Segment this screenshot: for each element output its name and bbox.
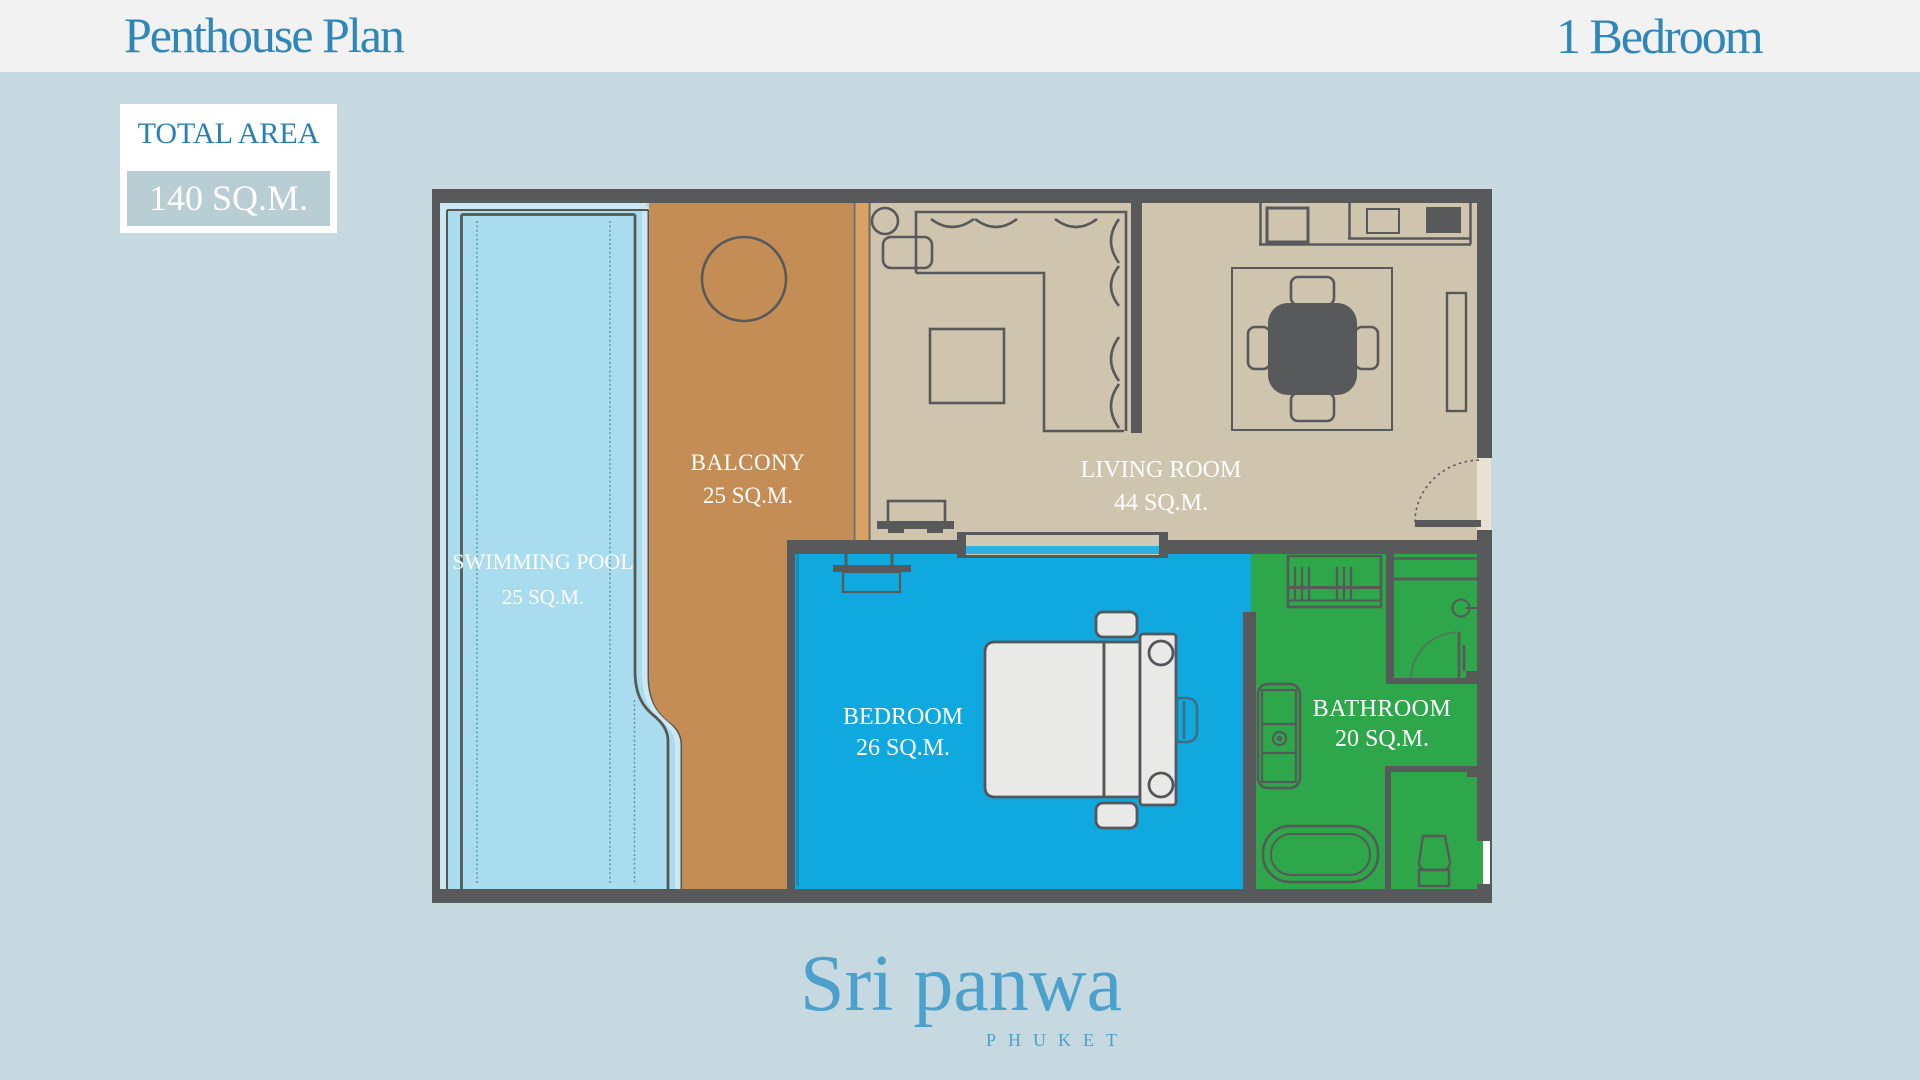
- svg-text:LIVING ROOM: LIVING ROOM: [1081, 457, 1242, 483]
- svg-text:26 SQ.M.: 26 SQ.M.: [856, 735, 950, 761]
- svg-text:BATHROOM: BATHROOM: [1313, 696, 1452, 722]
- svg-text:25 SQ.M.: 25 SQ.M.: [703, 483, 793, 508]
- svg-text:25 SQ.M.: 25 SQ.M.: [502, 585, 584, 609]
- svg-text:20 SQ.M.: 20 SQ.M.: [1335, 726, 1429, 752]
- svg-text:BEDROOM: BEDROOM: [843, 704, 963, 730]
- svg-text:SWIMMING POOL: SWIMMING POOL: [452, 549, 634, 574]
- svg-text:44 SQ.M.: 44 SQ.M.: [1114, 490, 1208, 516]
- svg-text:BALCONY: BALCONY: [691, 450, 806, 475]
